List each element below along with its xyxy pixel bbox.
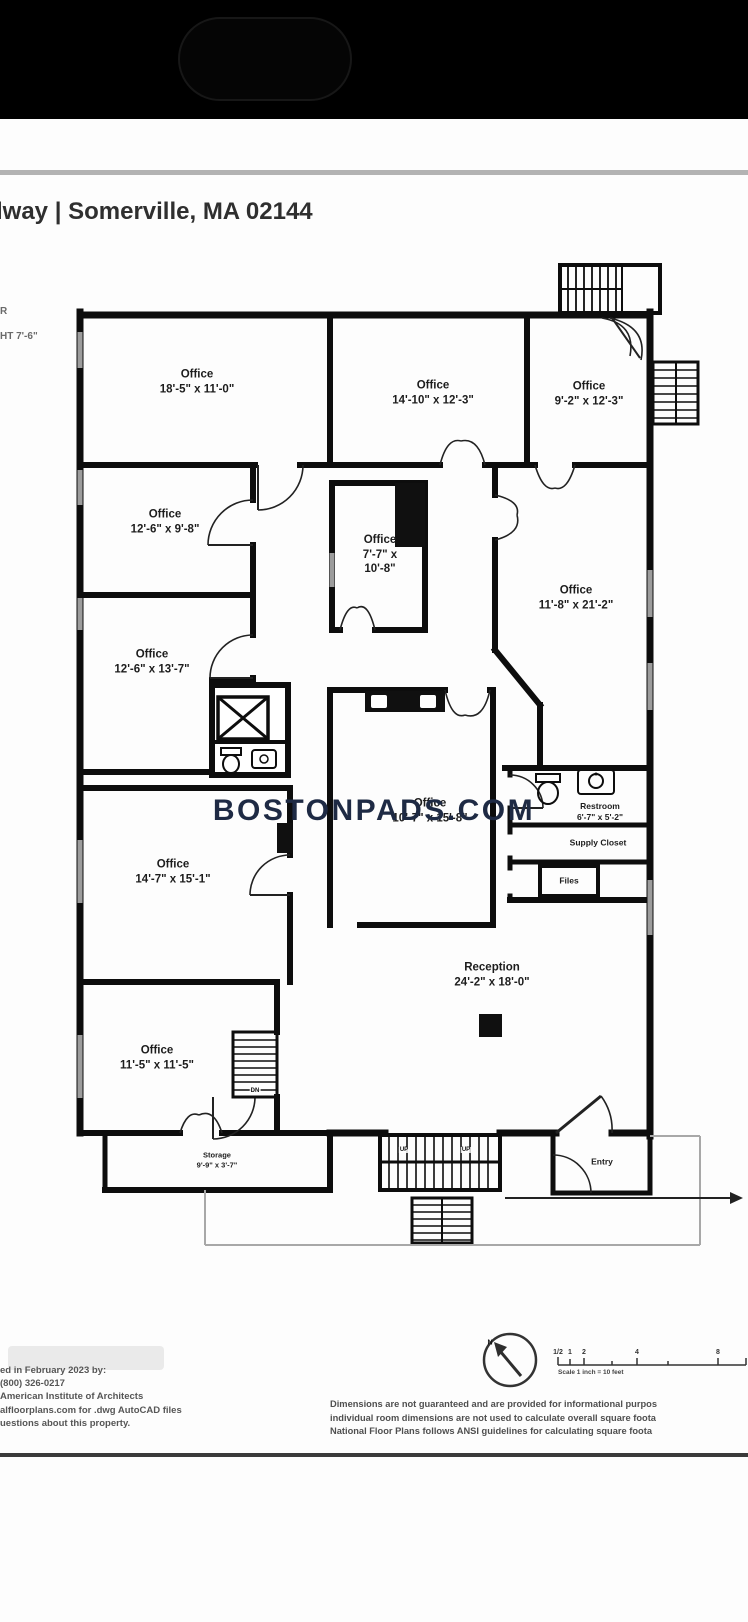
stair-up-label-1: UP — [399, 1147, 409, 1153]
room-label-supply-closet: Supply Closet — [570, 838, 627, 849]
room-label-restroom: Restroom 6'-7" x 5'-2" — [577, 801, 623, 823]
stair-exterior-bottom — [380, 1135, 500, 1190]
room-label-office5: Office 7'-7" x 10'-8" — [363, 533, 397, 577]
room-label-office2: Office 14'-10" x 12'-3" — [392, 378, 474, 407]
room-label-office3: Office 9'-2" x 12'-3" — [555, 379, 624, 408]
room-label-entry: Entry — [591, 1157, 613, 1168]
room-label-reception: Reception 24'-2" x 18'-0" — [454, 960, 529, 989]
reception-column — [479, 1014, 502, 1037]
stair-dn-label: DN — [250, 1088, 261, 1094]
room-label-storage: Storage 9'-9" x 3'-7" — [197, 1150, 238, 1169]
room-label-office4: Office 12'-6" x 9'-8" — [131, 507, 200, 536]
scale-bar — [558, 1357, 746, 1365]
room-label-office7: Office 12'-6" x 13'-7" — [114, 647, 189, 676]
toilet-icon-restroom — [536, 774, 560, 804]
compass-north-label: N — [486, 1340, 493, 1347]
stair-up-label-2: UP — [461, 1147, 471, 1153]
room-label-office8: Office 14'-7" x 15'-1" — [135, 857, 210, 886]
stair-top-right — [560, 265, 660, 313]
screenshot-root: lway | Somerville, MA 02144 R HT 7'-6" — [0, 0, 748, 1622]
sink-icon-restroom — [578, 770, 614, 794]
room-label-files: Files — [559, 876, 578, 887]
room-label-office1: Office 18'-5" x 11'-0" — [160, 367, 235, 396]
kitchen-counter — [365, 691, 445, 712]
room-label-office14: Office 11'-5" x 11'-5" — [120, 1043, 194, 1072]
stair-fire-escape-right — [653, 362, 698, 424]
stair-lower-bottom — [412, 1198, 472, 1243]
outer-walls — [80, 312, 650, 1136]
room-label-office6: Office 11'-8" x 21'-2" — [539, 583, 614, 612]
bostonpads-watermark: BOSTONPADS.COM — [213, 794, 535, 828]
